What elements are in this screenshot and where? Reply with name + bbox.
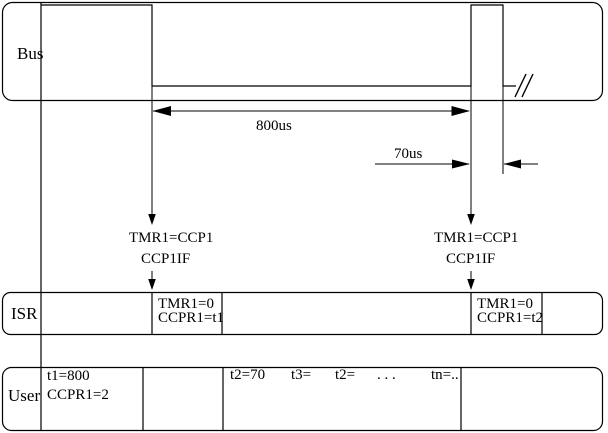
bus-band-label: Bus (17, 45, 43, 62)
event-right-line2: CCP1IF (446, 252, 495, 267)
user-cell2-token-1: t2=70 (230, 368, 265, 383)
dim-800us-label: 800us (256, 119, 292, 134)
dim-70us-label: 70us (394, 147, 422, 162)
bus-waveform (41, 5, 516, 86)
isr-cell2-line2: CCPR1=t2 (477, 311, 543, 326)
event-left-line2: CCP1IF (141, 252, 190, 267)
user-cell1-line2: CCPR1=2 (47, 388, 109, 403)
isr-cell1-line2: CCPR1=t1 (158, 311, 224, 326)
user-band-label: User (8, 387, 40, 404)
event-arrowhead-right-2 (467, 279, 475, 290)
user-cell2-token-2: t3= (291, 368, 311, 383)
dim-70us-arrowhead-right (504, 160, 522, 169)
user-cell2-token-4: . . . (377, 368, 396, 383)
event-arrowhead-right-1 (467, 214, 475, 225)
isr-band-label: ISR (11, 305, 37, 322)
event-arrowhead-left-1 (148, 214, 156, 225)
user-cell2-token-3: t2= (335, 368, 355, 383)
user-cell1-line1: t1=800 (47, 369, 90, 384)
event-arrowhead-left-2 (148, 279, 156, 290)
dim-800us-arrowhead-right (452, 106, 471, 116)
dim-70us-arrowhead-left (452, 160, 470, 169)
event-left-line1: TMR1=CCP1 (129, 231, 213, 246)
user-cell2-token-5: tn=.. (431, 368, 459, 383)
dim-800us-arrowhead-left (153, 106, 172, 116)
timing-diagram: Bus ISR User 800us 70us TMR1=CCP1 CCP1IF… (0, 0, 608, 433)
event-right-line1: TMR1=CCP1 (434, 231, 518, 246)
